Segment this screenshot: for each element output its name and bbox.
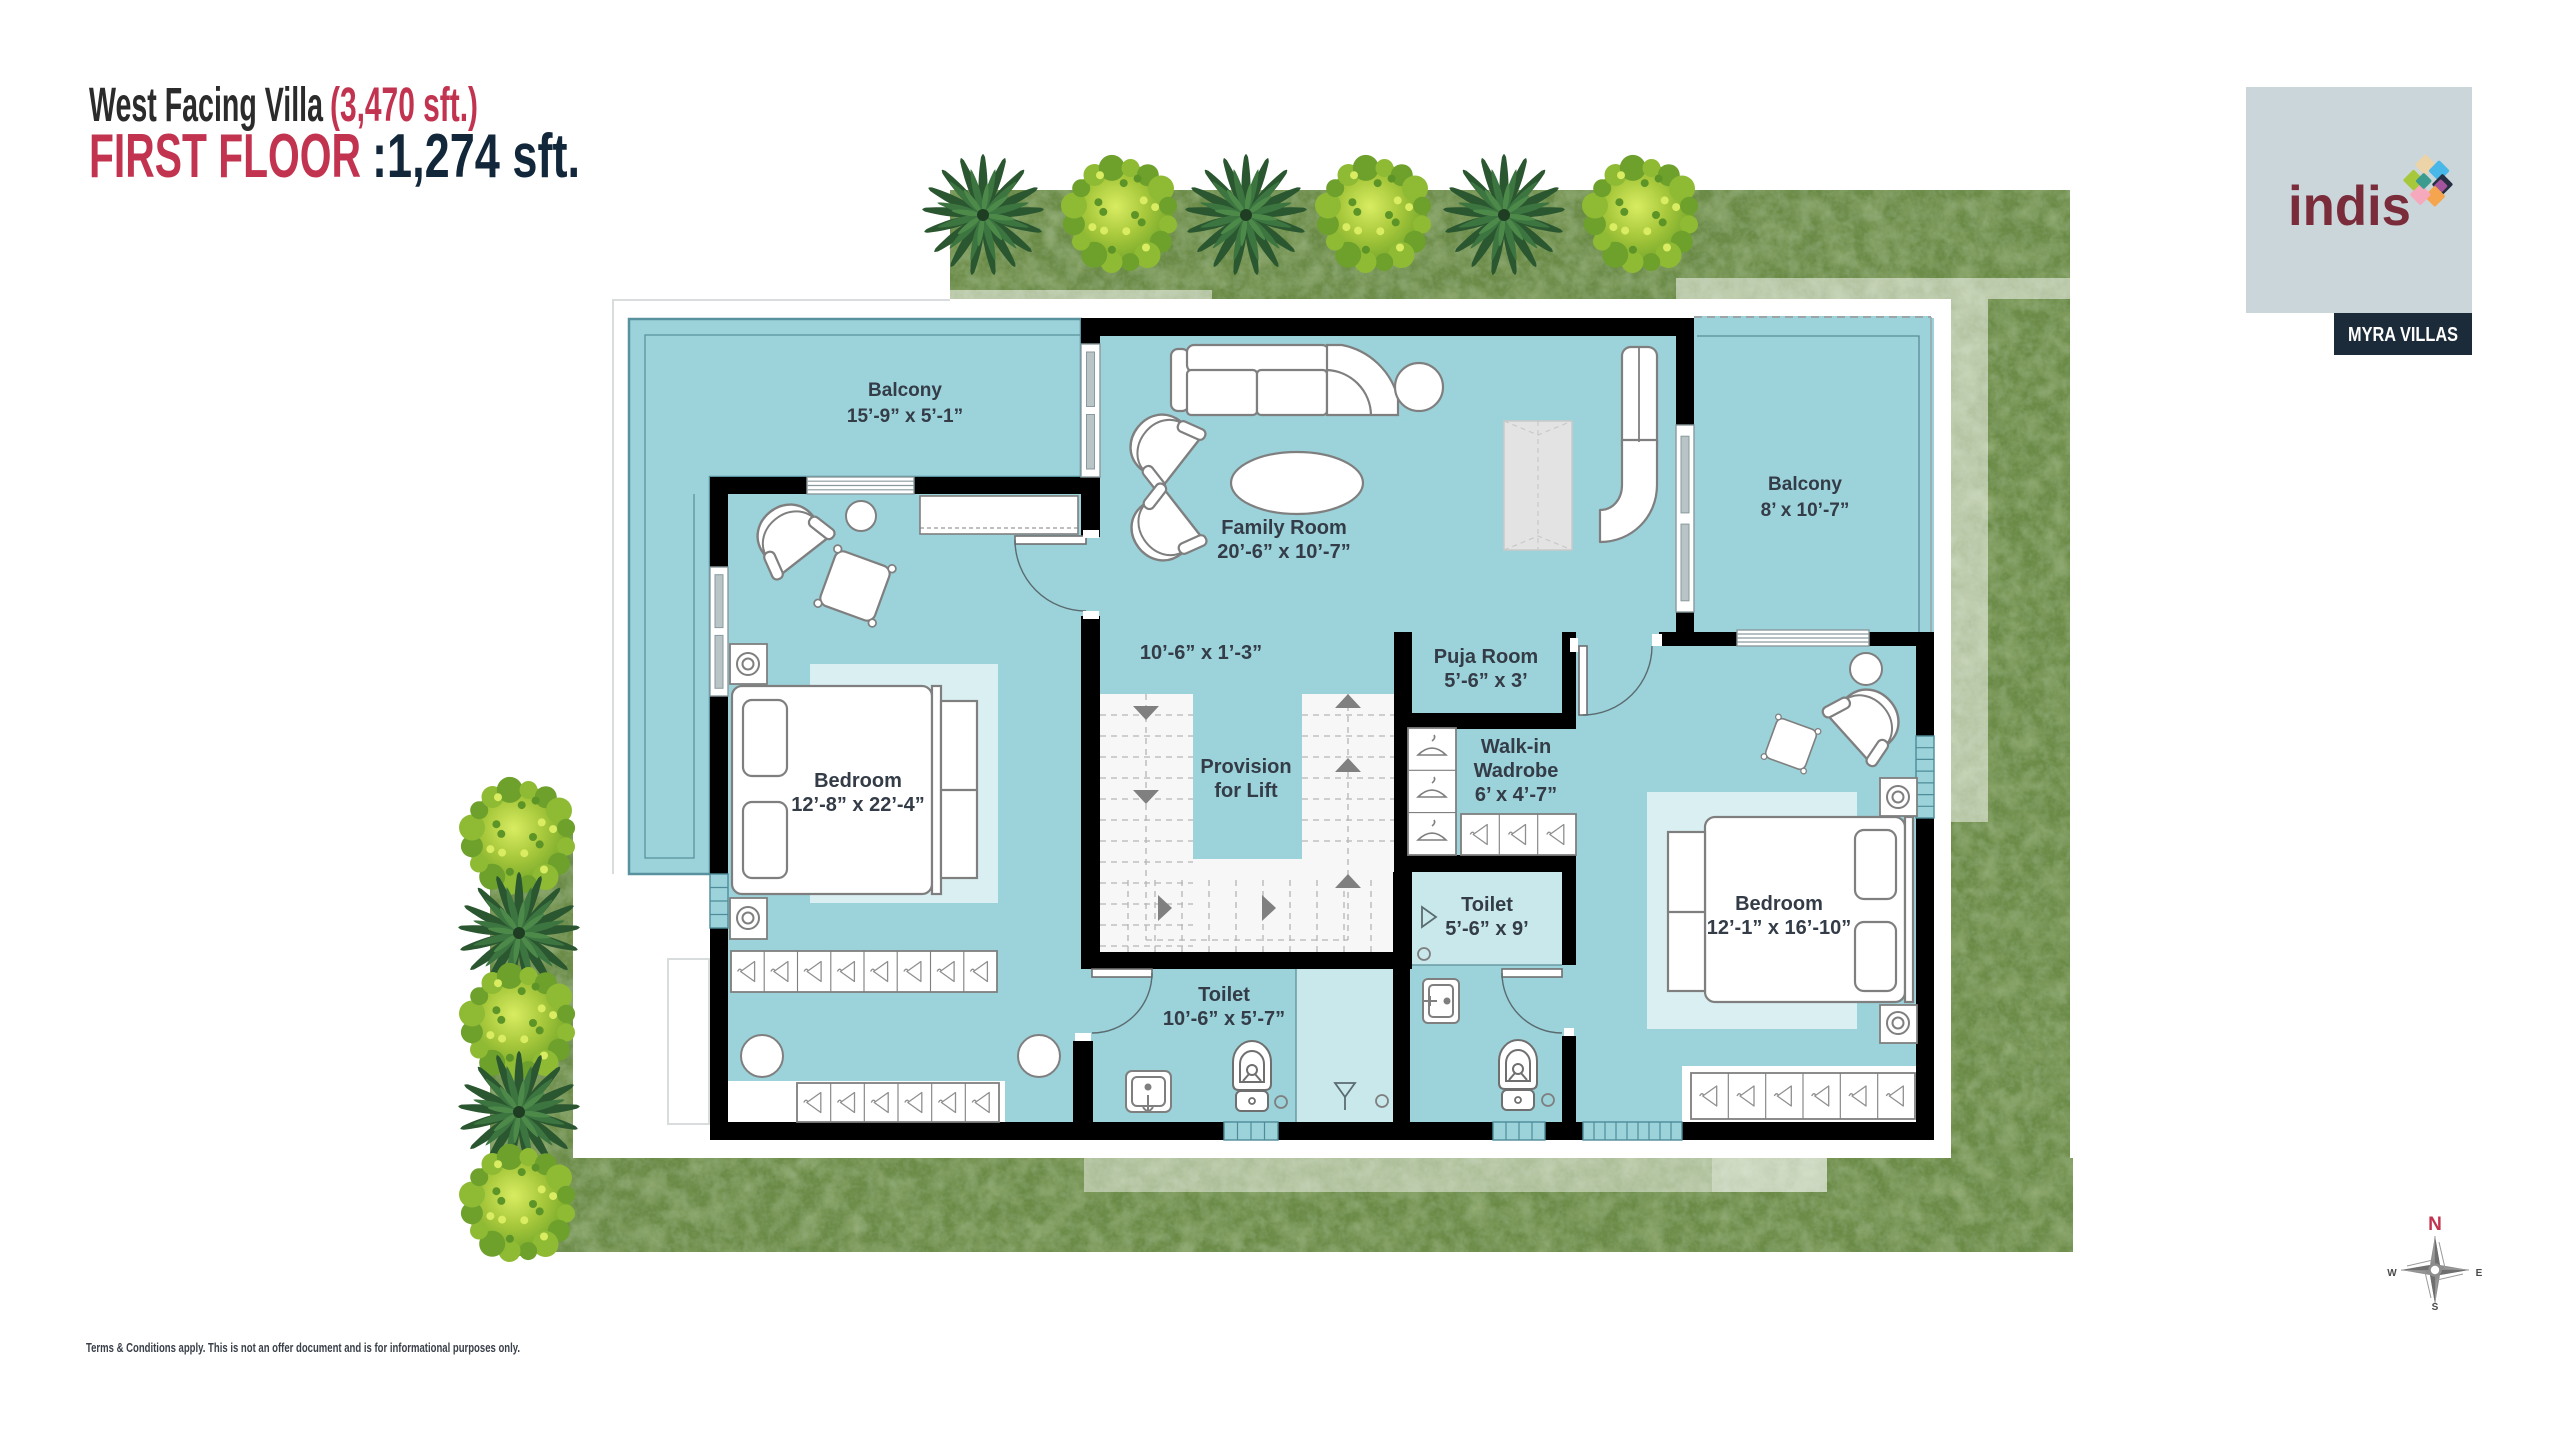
svg-text:10’-6” x 5’-7”: 10’-6” x 5’-7” — [1163, 1008, 1285, 1030]
svg-text:5’-6” x 9’: 5’-6” x 9’ — [1445, 918, 1528, 940]
svg-text:Wadrobe: Wadrobe — [1474, 760, 1559, 782]
svg-text:Bedroom: Bedroom — [814, 770, 902, 792]
svg-text:S: S — [2432, 1302, 2439, 1313]
svg-text:10’-6” x 1’-3”: 10’-6” x 1’-3” — [1140, 642, 1262, 664]
svg-text:Balcony: Balcony — [1768, 474, 1842, 495]
svg-text:12’-8” x 22’-4”: 12’-8” x 22’-4” — [791, 794, 924, 816]
svg-text:indis: indis — [2288, 174, 2411, 237]
svg-text:E: E — [2476, 1268, 2483, 1279]
svg-text:15’-9” x 5’-1”: 15’-9” x 5’-1” — [847, 406, 963, 427]
svg-text:5’-6” x 3’: 5’-6” x 3’ — [1444, 670, 1527, 692]
svg-text:Family Room: Family Room — [1221, 517, 1347, 539]
svg-text::1,274 sft.: :1,274 sft. — [372, 122, 580, 191]
svg-text:Walk-in: Walk-in — [1481, 736, 1551, 758]
svg-text:MYRA VILLAS: MYRA VILLAS — [2348, 324, 2458, 346]
svg-text:8’ x 10’-7”: 8’ x 10’-7” — [1761, 500, 1850, 521]
svg-text:Toilet: Toilet — [1461, 894, 1513, 916]
svg-text:Bedroom: Bedroom — [1735, 893, 1823, 915]
svg-text:N: N — [2428, 1214, 2442, 1235]
svg-text:20’-6” x 10’-7”: 20’-6” x 10’-7” — [1217, 541, 1350, 563]
svg-text:FIRST FLOOR: FIRST FLOOR — [89, 122, 361, 191]
svg-text:Toilet: Toilet — [1198, 984, 1250, 1006]
svg-text:12’-1” x 16’-10”: 12’-1” x 16’-10” — [1707, 917, 1852, 939]
svg-text:W: W — [2387, 1268, 2397, 1279]
svg-text:6’ x 4’-7”: 6’ x 4’-7” — [1475, 784, 1557, 806]
svg-text:Provision: Provision — [1200, 756, 1291, 778]
svg-text:Terms & Conditions apply. This: Terms & Conditions apply. This is not an… — [86, 1341, 520, 1355]
svg-text:for Lift: for Lift — [1214, 780, 1278, 802]
svg-text:Puja Room: Puja Room — [1434, 646, 1538, 668]
svg-text:Balcony: Balcony — [868, 380, 942, 401]
